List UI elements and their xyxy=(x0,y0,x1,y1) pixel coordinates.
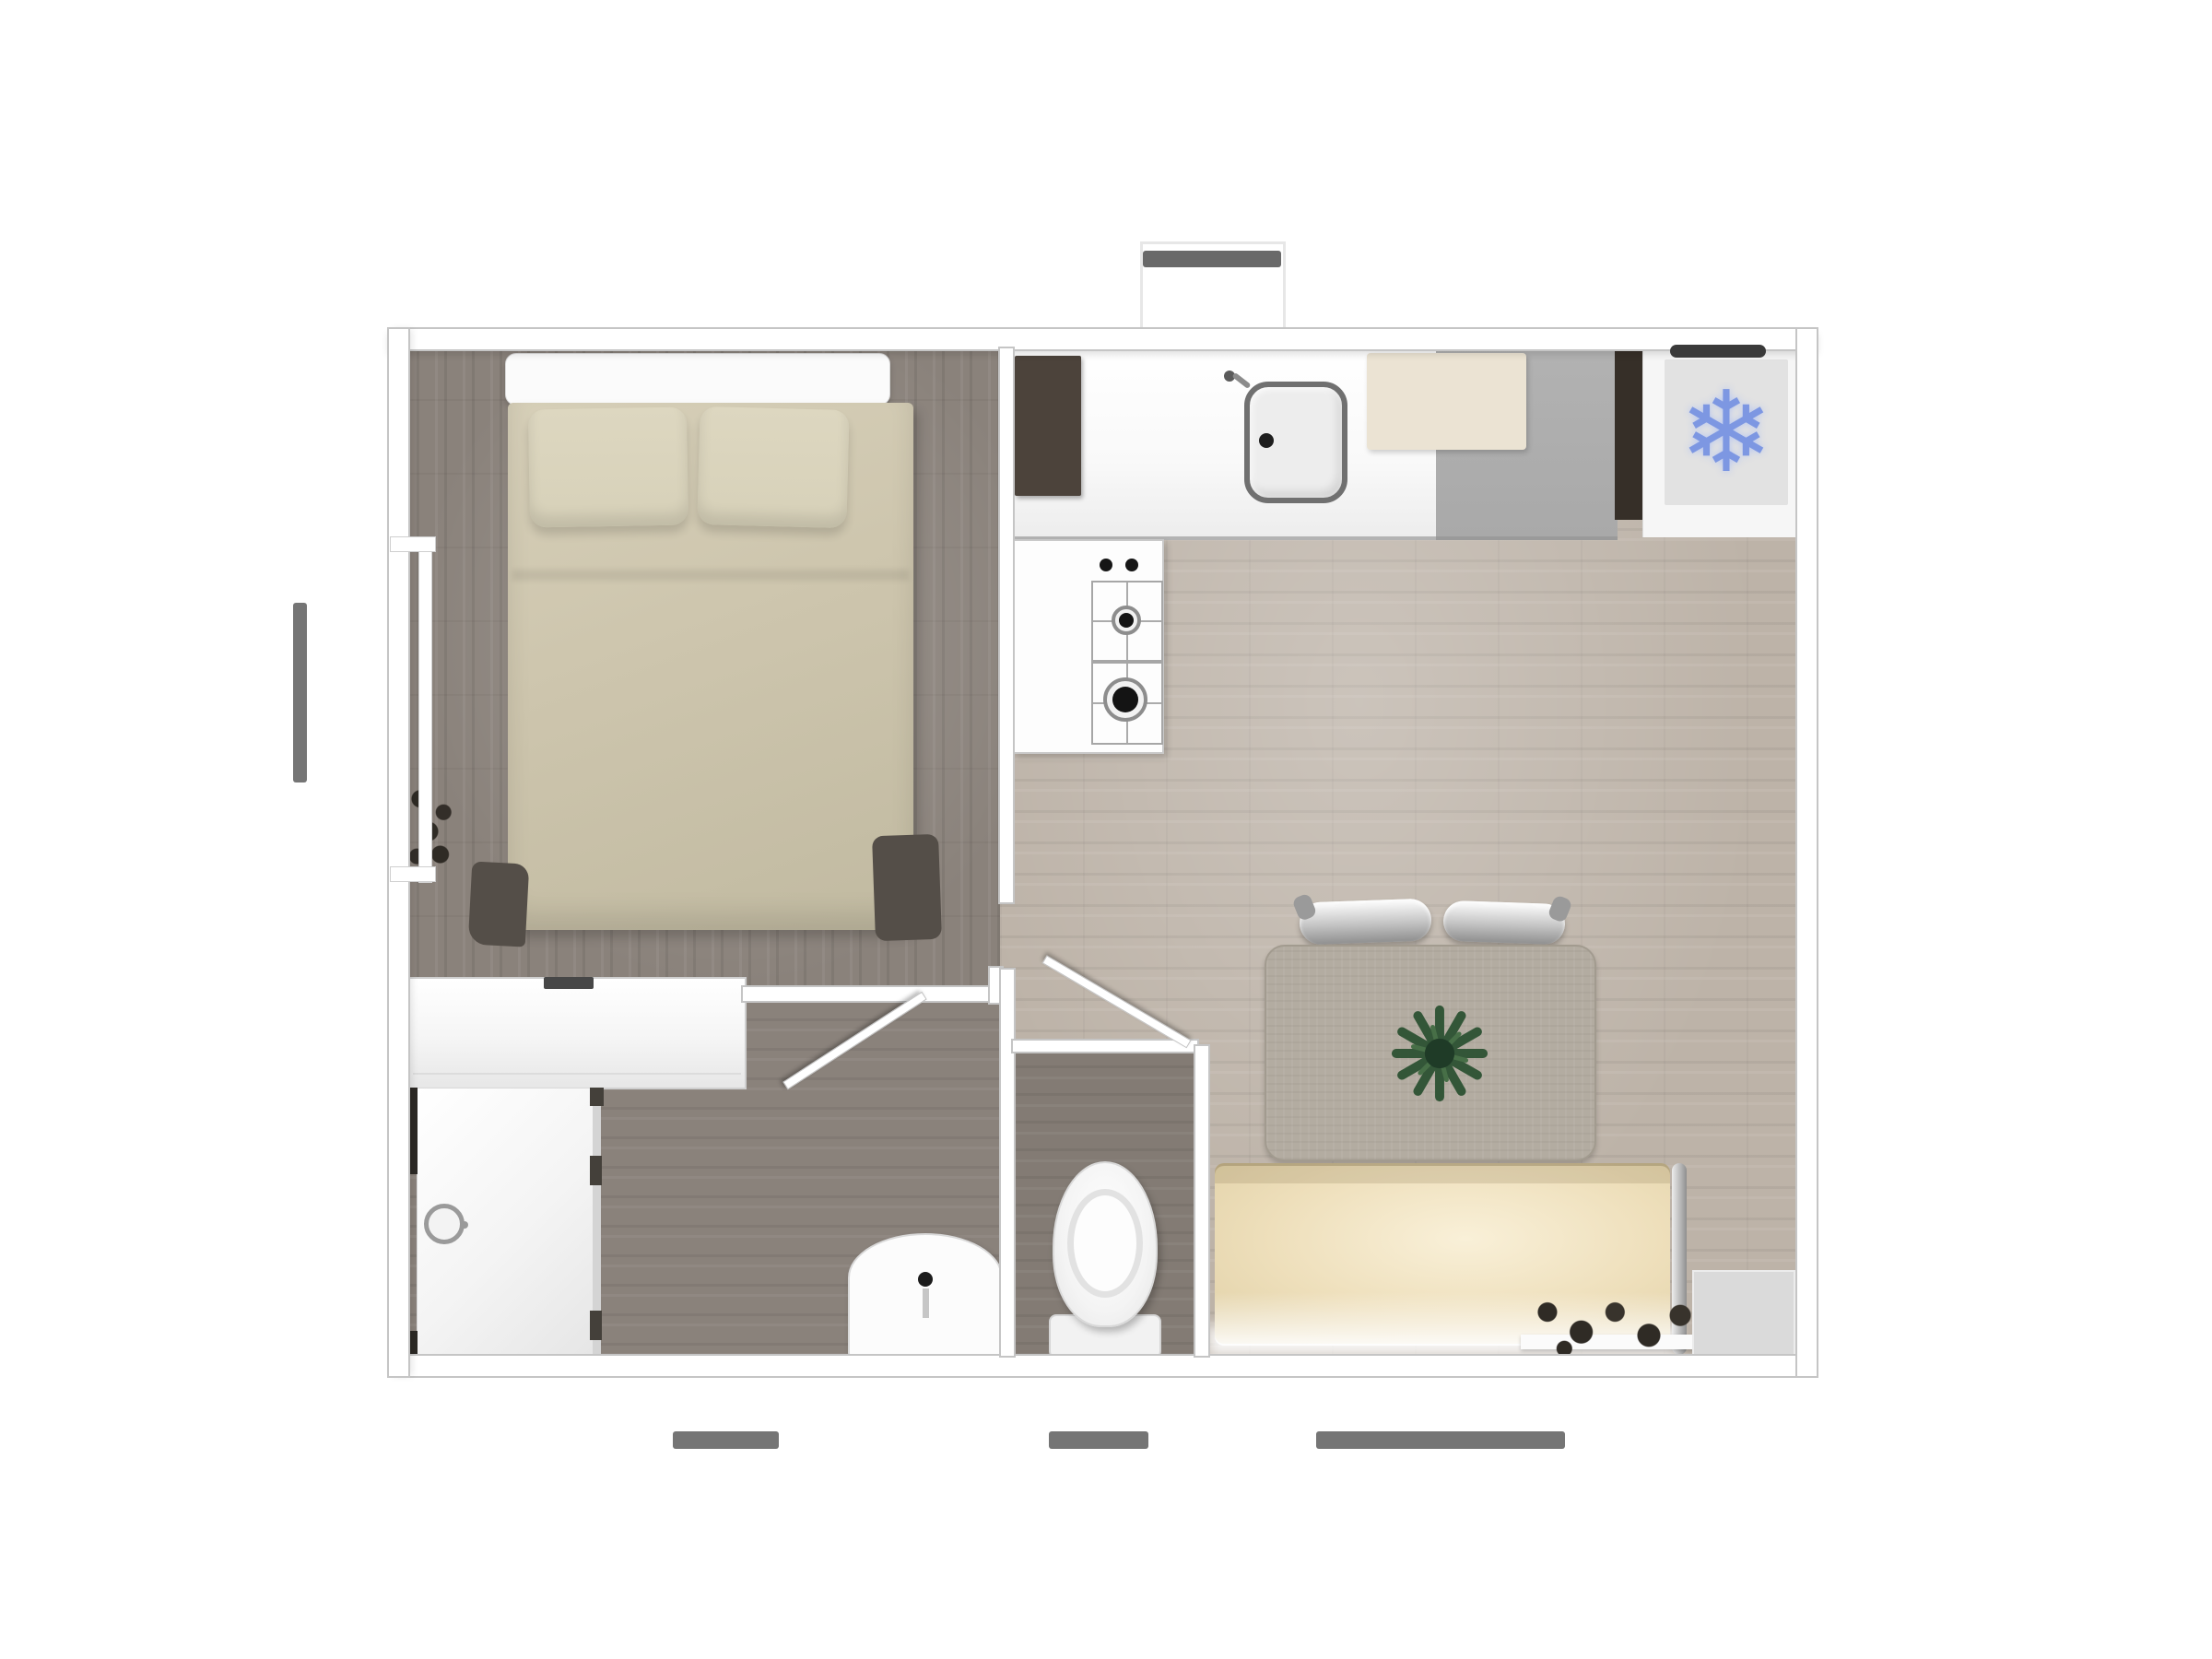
plant-centerpiece xyxy=(1382,996,1497,1111)
bed-frame-corner-right xyxy=(872,834,942,941)
snowflake-icon: ❄ xyxy=(1679,376,1773,488)
hob-knob-2 xyxy=(1125,559,1138,571)
bathroom-wall xyxy=(1001,970,1014,1356)
shower-drain xyxy=(424,1204,465,1244)
corner-mat xyxy=(1692,1270,1795,1360)
refrigerator-top: ❄ xyxy=(1665,359,1788,505)
shower-door-handle-bottom xyxy=(590,1311,602,1340)
cutting-board xyxy=(1367,353,1526,450)
toilet-seat xyxy=(1067,1189,1143,1298)
washbasin-faucet xyxy=(918,1272,933,1287)
refrigerator-handle xyxy=(1670,345,1766,358)
wardrobe-handle xyxy=(544,977,594,989)
wall-top xyxy=(389,329,1817,349)
window-plant xyxy=(404,782,459,877)
hallway-wall xyxy=(743,987,992,1001)
plant-icon xyxy=(1382,996,1497,1111)
washbasin-faucet-stem xyxy=(923,1288,929,1318)
hob-knob-1 xyxy=(1100,559,1112,571)
pillow-right xyxy=(697,406,849,528)
wall-bottom xyxy=(389,1356,1817,1376)
sink-drain xyxy=(1259,433,1274,448)
silver-cushion-right xyxy=(1442,900,1565,946)
wall-right xyxy=(1797,329,1817,1376)
bed-headboard xyxy=(505,353,890,406)
counter-divider-strip xyxy=(1615,348,1642,520)
wc-wall xyxy=(1195,1046,1208,1356)
silver-cushion-left xyxy=(1299,899,1432,946)
tall-dark-cabinet xyxy=(1015,356,1081,496)
pillow-left xyxy=(528,407,688,528)
shower-door-hinge xyxy=(590,1088,604,1106)
left-window-marker xyxy=(293,603,307,782)
top-window-marker xyxy=(1143,251,1281,267)
bedroom-window-cap-bottom xyxy=(391,867,435,881)
bedroom-window-cap-top xyxy=(391,537,435,551)
duvet-fold xyxy=(512,570,909,581)
bedroom-divider-wall xyxy=(1000,348,1013,902)
wall-left xyxy=(389,329,408,1376)
shower-door-handle-top xyxy=(590,1156,602,1185)
bedroom-window xyxy=(419,539,431,882)
bottom-window-marker-3 xyxy=(1316,1431,1565,1449)
wc-door-frame xyxy=(1013,1041,1197,1052)
bed-frame-corner-left xyxy=(468,861,530,947)
bottom-window-marker-2 xyxy=(1049,1431,1148,1449)
floor-plan: ❄ xyxy=(0,0,2212,1659)
burner-large xyxy=(1112,687,1138,712)
wardrobe xyxy=(407,977,747,1089)
bottom-window-marker-1 xyxy=(673,1431,779,1449)
burner-small xyxy=(1119,613,1134,628)
